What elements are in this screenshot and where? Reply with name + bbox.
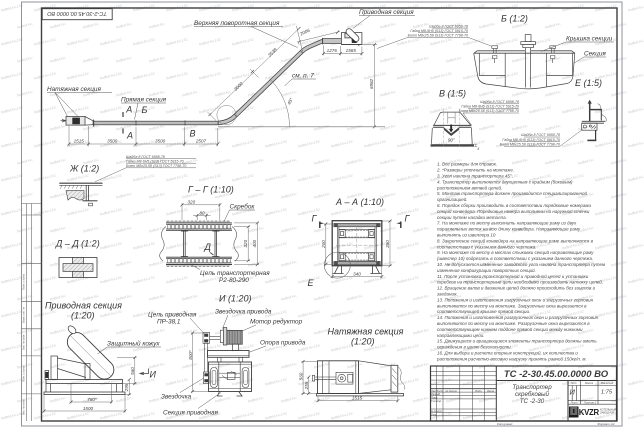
svg-text:Е: Е [308,278,315,288]
svg-text:изменения конфигурации поворот: изменения конфигурации поворотных секций… [437,267,536,273]
svg-text:1:75: 1:75 [601,390,613,396]
svg-text:Масса: Масса [585,381,593,385]
svg-text:14. Положения и изготовления р: 14. Положения и изготовления разгрузочны… [437,315,599,320]
svg-text:Прямая секция: Прямая секция [121,97,167,104]
svg-text:скребковый: скребковый [515,391,550,398]
svg-text:И (1:20): И (1:20) [219,294,251,304]
svg-text:направляющими цепи.: направляющими цепи. [437,333,484,338]
svg-text:Лист: Лист [435,389,444,393]
svg-text:А – А (1:10): А – А (1:10) [335,197,384,207]
svg-text:расположения расчетно-весовую: расположения расчетно-весовую нагрузку п… [436,355,587,361]
svg-text:Защитный кожух: Защитный кожух [107,340,160,348]
svg-text:Шайба 8 ГОСТ 6958-78: Шайба 8 ГОСТ 6958-78 [429,24,468,28]
svg-text:Пров.: Пров. [431,396,438,400]
svg-text:Болт М8х25.58 (S13) ГОСТ 7798-: Болт М8х25.58 (S13) ГОСТ 7798-70 [500,142,560,146]
svg-text:6982: 6982 [369,78,374,89]
svg-text:Лист: Лист [570,401,579,405]
svg-text:400: 400 [252,239,257,247]
svg-text:Взам. инв. №: Взам. инв. № [22,307,26,323]
svg-text:соответствующем нижнем поддоне: соответствующем нижнем поддоне прямой се… [437,326,583,332]
svg-text:1276: 1276 [327,48,338,53]
svg-text:380: 380 [385,240,390,248]
svg-text:Цепь приводная: Цепь приводная [148,311,197,319]
svg-text:Крышка секции: Крышка секции [566,36,613,43]
svg-text:Натяжная секция: Натяжная секция [328,327,404,337]
svg-text:Приводная секция: Приводная секция [45,301,122,311]
svg-text:Болт М8х25.58 (S13) ГОСТ 7798-: Болт М8х25.58 (S13) ГОСТ 7798-70 [126,164,186,168]
svg-text:3. Угол наклона транспортера: 3. Угол наклона транспортера 45°. [437,174,513,179]
svg-text:И: И [570,388,576,397]
svg-text:Болт М8х25.58 (S13) ГОСТ 7798-: Болт М8х25.58 (S13) ГОСТ 7798-70 [408,34,468,38]
svg-text:Б: Б [142,105,148,115]
svg-text:А: А [125,104,132,114]
svg-text:90°: 90° [448,138,455,143]
svg-text:секции путем наладки металла.: секции путем наладки металла. [437,215,507,220]
svg-text:Лит.: Лит. [570,381,578,385]
svg-text:Транспортер: Транспортер [512,384,552,391]
svg-text:8. Закрепление секций конвейе: 8. Закрепление секций конвейера на напра… [437,237,594,243]
svg-text:организацией.: организацией. [437,196,468,202]
svg-text:Д: Д [204,242,212,252]
svg-text:780*: 780* [87,397,97,402]
svg-text:(швеллер 10) подрезать в соотв: (швеллер 10) подрезать в соответствии с … [437,256,593,261]
svg-text:340: 340 [353,272,361,277]
svg-text:ограждения в целях безопасност: ограждения в целях безопасности. [437,345,512,350]
svg-text:560: 560 [130,367,135,375]
svg-text:9. На монтаже по месту в мест: 9. На монтаже по месту в местах стыковки… [437,249,594,255]
svg-text:заедания.: заедания. [436,292,458,297]
svg-text:Утв.: Утв. [431,413,437,417]
svg-text:320: 320 [187,200,195,205]
svg-text:Б (1:2): Б (1:2) [501,14,528,24]
svg-text:Шайба 8 ГОСТ 6958-78: Шайба 8 ГОСТ 6958-78 [521,133,560,137]
svg-text:(1:20): (1:20) [71,311,95,321]
svg-text:Листов 1: Листов 1 [583,401,597,405]
svg-text:Приводная секция: Приводная секция [359,8,414,16]
svg-text:Звездочка: Звездочка [161,393,192,401]
svg-text:Гайка М8-6Н5 (S13) ГОСТ 5915-7: Гайка М8-6Н5 (S13) ГОСТ 5915-70 [502,138,560,142]
svg-text:3500: 3500 [155,139,166,144]
svg-text:параллельных веток на всю длин: параллельных веток на всю длину конвейер… [437,226,581,232]
svg-text:Подп. и дата: Подп. и дата [22,365,26,382]
svg-text:2. *Размеры уточнить на монтаж: 2. *Размеры уточнить на монтаже. [436,168,514,173]
svg-text:Д – Д (1:2): Д – Д (1:2) [55,239,100,249]
svg-text:295: 295 [124,383,129,392]
svg-text:ПР-38,1: ПР-38,1 [157,319,181,326]
svg-text:12. Вращение валов и движение: 12. Вращение валов и движение цепей долж… [437,285,596,291]
svg-text:Масштаб: Масштаб [601,381,614,385]
svg-text:В (1:5): В (1:5) [439,89,466,99]
svg-text:Опора привода: Опора привода [260,339,306,347]
svg-text:560: 560 [298,372,303,380]
svg-text:выполняются по месту на монтаж: выполняются по месту на монтаже. Разгруз… [437,321,590,326]
svg-text:1500: 1500 [83,406,94,411]
svg-text:Болт М8х25.58 (S13) ГОСТ 7798-: Болт М8х25.58 (S13) ГОСТ 7798-70 [459,109,519,113]
svg-text:2507: 2507 [195,139,207,144]
svg-text:(1:20): (1:20) [351,337,375,347]
svg-text:Инв. № дубл.: Инв. № дубл. [22,334,26,350]
svg-text:10. Не допускается изменение з: 10. Не допускается изменение заводского … [437,262,605,267]
svg-text:Гайка М8-6Н5 (S13) ГОСТ 5915-7: Гайка М8-6Н5 (S13) ГОСТ 5915-70 [126,159,184,163]
svg-text:Гайка М8-6Н5 (S13) ГОСТ 5915-7: Гайка М8-6Н5 (S13) ГОСТ 5915-70 [461,105,519,109]
svg-text:Т.контр.: Т.контр. [431,399,442,403]
svg-text:Гайка М8-6Н5 (S13) ГОСТ 5915-7: Гайка М8-6Н5 (S13) ГОСТ 5915-70 [410,29,468,33]
svg-text:В: В [190,129,196,139]
svg-text:расположением ветвей цепей.: расположением ветвей цепей. [436,184,502,190]
svg-text:320: 320 [243,239,248,247]
svg-text:KVZR: KVZR [579,408,600,417]
svg-text:Н.контр.: Н.контр. [431,409,443,413]
svg-text:выполнять из швеллера 10: выполнять из швеллера 10 [437,233,496,238]
svg-text:Дата: Дата [486,389,495,393]
svg-text:Скребок: Скребок [230,203,256,211]
svg-text:16. Для выбора и расчета опорн: 16. Для выбора и расчета опорных констру… [437,350,578,356]
svg-text:4: 4 [477,147,479,151]
svg-text:И: И [150,370,157,380]
svg-text:1515: 1515 [74,139,85,144]
svg-text:1585: 1585 [346,48,357,53]
svg-text:4. Транспортер выполняется дв: 4. Транспортер выполняется двухцепным с … [437,178,573,184]
svg-text:6. Порядок сборки производить: 6. Порядок сборки производить в соответс… [437,203,591,208]
svg-text:Копировал: Копировал [497,422,513,426]
svg-text:7. На монтаже по месту выполн: 7. На монтаже по месту выполнить направл… [437,221,577,226]
svg-text:11. После установки транспорте: 11. После установки транспортерной и при… [437,273,589,279]
svg-text:1515: 1515 [352,396,363,401]
svg-text:Шайба 8 ГОСТ 6958-78: Шайба 8 ГОСТ 6958-78 [480,100,519,104]
svg-text:ЗАВОД РЗР: ЗАВОД РЗР [600,411,615,415]
svg-text:Инв. № подл.: Инв. № подл. [22,399,26,415]
svg-text:см. п. 7: см. п. 7 [292,73,314,80]
svg-text:соответствующей крышке прямой: соответствующей крышке прямой секции. [437,308,530,314]
svg-text:ТС -2-30.45.00.0000 ВО: ТС -2-30.45.00.0000 ВО [504,369,609,380]
svg-text:Разраб.: Разраб. [431,392,441,396]
svg-text:Подп. и дата: Подп. и дата [22,273,26,290]
svg-text:Ж (1:2): Ж (1:2) [69,164,99,174]
svg-text:1. Все размеры для справок.: 1. Все размеры для справок. [437,162,497,167]
svg-text:5. Монтаж транспортера должен: 5. Монтаж транспортера должен производит… [437,190,587,196]
svg-text:Формат А2: Формат А2 [598,422,615,426]
svg-text:ТС-2-30.45.00.0000 ВО: ТС-2-30.45.00.0000 ВО [47,10,107,16]
svg-text:Р2-80-290: Р2-80-290 [219,277,249,284]
svg-text:255: 255 [304,381,309,390]
svg-text:Мотор редуктор: Мотор редуктор [250,318,303,326]
svg-text:13. Положения и изготовления з: 13. Положения и изготовления загрузочных… [437,297,594,302]
svg-text:Секция: Секция [584,51,606,58]
svg-text:Верхняя поворотная секция: Верхняя поворотная секция [194,20,280,27]
svg-text:секций конвейера. Порядковые н: секций конвейера. Порядковые номера выпо… [437,208,590,214]
svg-text:А: А [126,130,133,140]
svg-text:Звездочка привода: Звездочка привода [215,308,272,316]
svg-text:Г – Г (1:10): Г – Г (1:10) [188,185,234,195]
svg-text:Подп.: Подп. [475,389,482,393]
svg-text:80: 80 [199,210,205,215]
svg-text:Шайба 8 ГОСТ 6958-78: Шайба 8 ГОСТ 6958-78 [126,155,165,159]
svg-text:200: 200 [321,240,326,249]
svg-text:ТС -2-30: ТС -2-30 [520,398,545,405]
svg-text:Е (1:5): Е (1:5) [575,78,602,88]
svg-text:№ докум.: № докум. [445,389,457,393]
svg-text:выполняются по месту на монтаж: выполняются по месту на монтаже. Загрузо… [437,303,587,308]
svg-text:Натяжная секция: Натяжная секция [47,86,101,93]
svg-text:800*: 800* [188,350,193,360]
svg-text:3500: 3500 [107,139,118,144]
svg-text:15. Движущиеся и вращающиеся э: 15. Движущиеся и вращающиеся элементы тр… [437,339,597,344]
svg-text:Секция приводная: Секция приводная [163,409,219,417]
svg-text:Цепь транспортерная: Цепь транспортерная [200,270,270,277]
svg-text:скребков на транспортерные цеп: скребков на транспортерные цепи необходи… [437,279,603,285]
svg-text:соответствии с указанием данно: соответствии с указанием данного чертежа… [437,244,536,249]
